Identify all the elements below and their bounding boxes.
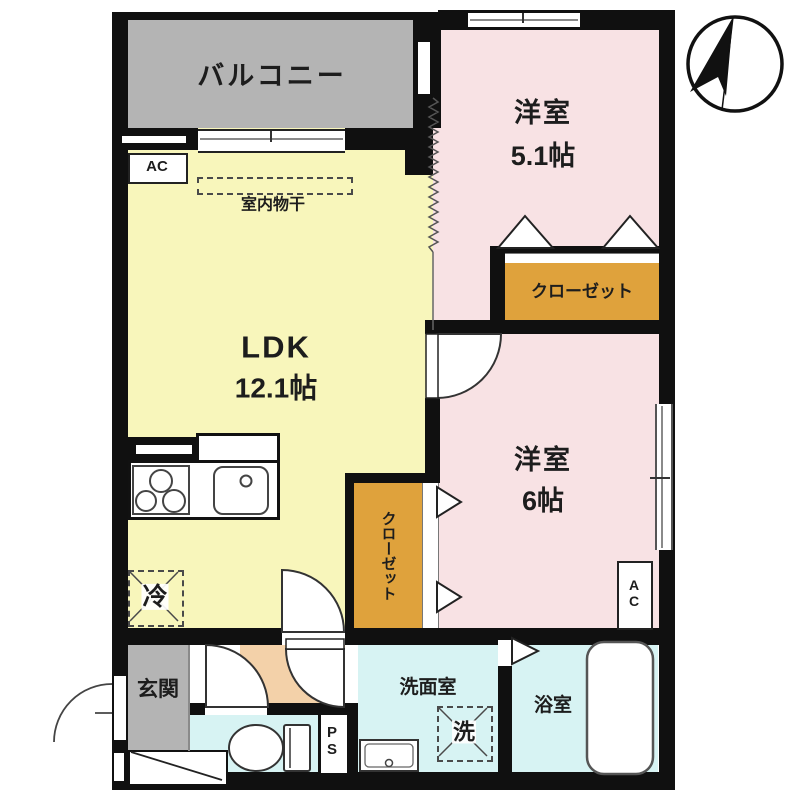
sink-faucet: [241, 476, 252, 487]
pipe-space-label: PS: [325, 724, 340, 758]
compass: [688, 17, 782, 111]
compass-circle: [688, 17, 782, 111]
washroom-door-arc: [286, 649, 344, 707]
washing-machine-label: 洗: [452, 720, 476, 743]
ac-bedroom2-label: AC: [627, 577, 641, 609]
bedroom2-size: 6帖: [522, 487, 564, 515]
bedroom2-door-panel: [426, 334, 438, 398]
shoe-cabinet-diagonal: [131, 752, 222, 780]
stove-burner-1: [150, 470, 172, 492]
kitchen-sink: [214, 467, 268, 514]
bathroom-bifold-triangle: [512, 638, 538, 664]
indoor-drying-label: 室内物干: [241, 198, 305, 215]
ac-ldk-label: AC: [146, 159, 168, 175]
closet1-bifold-triangle-2: [603, 216, 658, 248]
ldk-label: LDK: [241, 332, 311, 365]
bathroom-label: 浴室: [534, 696, 572, 716]
washroom-label: 洗面室: [399, 678, 456, 698]
stove-burner-2: [136, 491, 156, 511]
washroom-door-panel: [286, 639, 344, 649]
closet1-bifold-triangle-1: [498, 216, 553, 248]
ldk-door-arc: [282, 570, 344, 632]
bedroom2-label: 洋室: [514, 446, 572, 474]
toilet-tank: [284, 725, 310, 771]
closet2-bifold-triangle-2: [437, 582, 461, 612]
balcony-label: バルコニー: [197, 62, 346, 90]
refrigerator-label: 冷: [141, 584, 168, 610]
ldk-size: 12.1帖: [235, 373, 318, 402]
closet2-label: クローゼット: [381, 511, 396, 601]
bedroom2-door-arc: [437, 334, 501, 398]
washbasin-drain: [386, 760, 393, 767]
entrance-label: 玄関: [137, 679, 179, 701]
closet1-label: クローゼット: [531, 283, 633, 301]
toilet-door-arc: [206, 645, 268, 707]
toilet-bowl: [229, 725, 283, 771]
closet2-bifold-triangle-1: [437, 487, 461, 517]
bathtub: [587, 642, 653, 774]
accordion-partition: [429, 98, 438, 252]
bedroom1-size: 5.1帖: [511, 142, 576, 170]
stove-burner-3: [163, 490, 185, 512]
floor-plan: バルコニー 洋室 5.1帖 クローゼット LDK 12.1帖 室内物干 AC 洋…: [0, 0, 800, 800]
bedroom1-label: 洋室: [514, 99, 572, 127]
